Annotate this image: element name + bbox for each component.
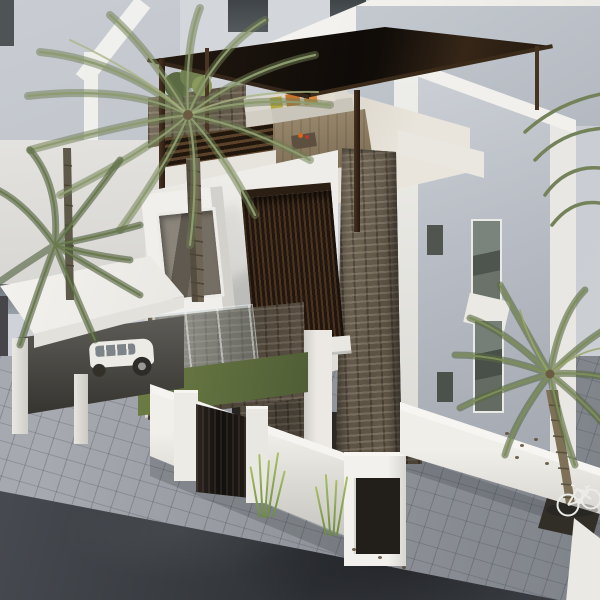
right-edge-fronds [525,92,600,225]
right-palm [455,285,600,517]
big-palm-crown [28,8,330,245]
vegetation-layer [0,0,600,600]
villa-render: Aerial 3D render of a modern white villa… [0,0,600,600]
